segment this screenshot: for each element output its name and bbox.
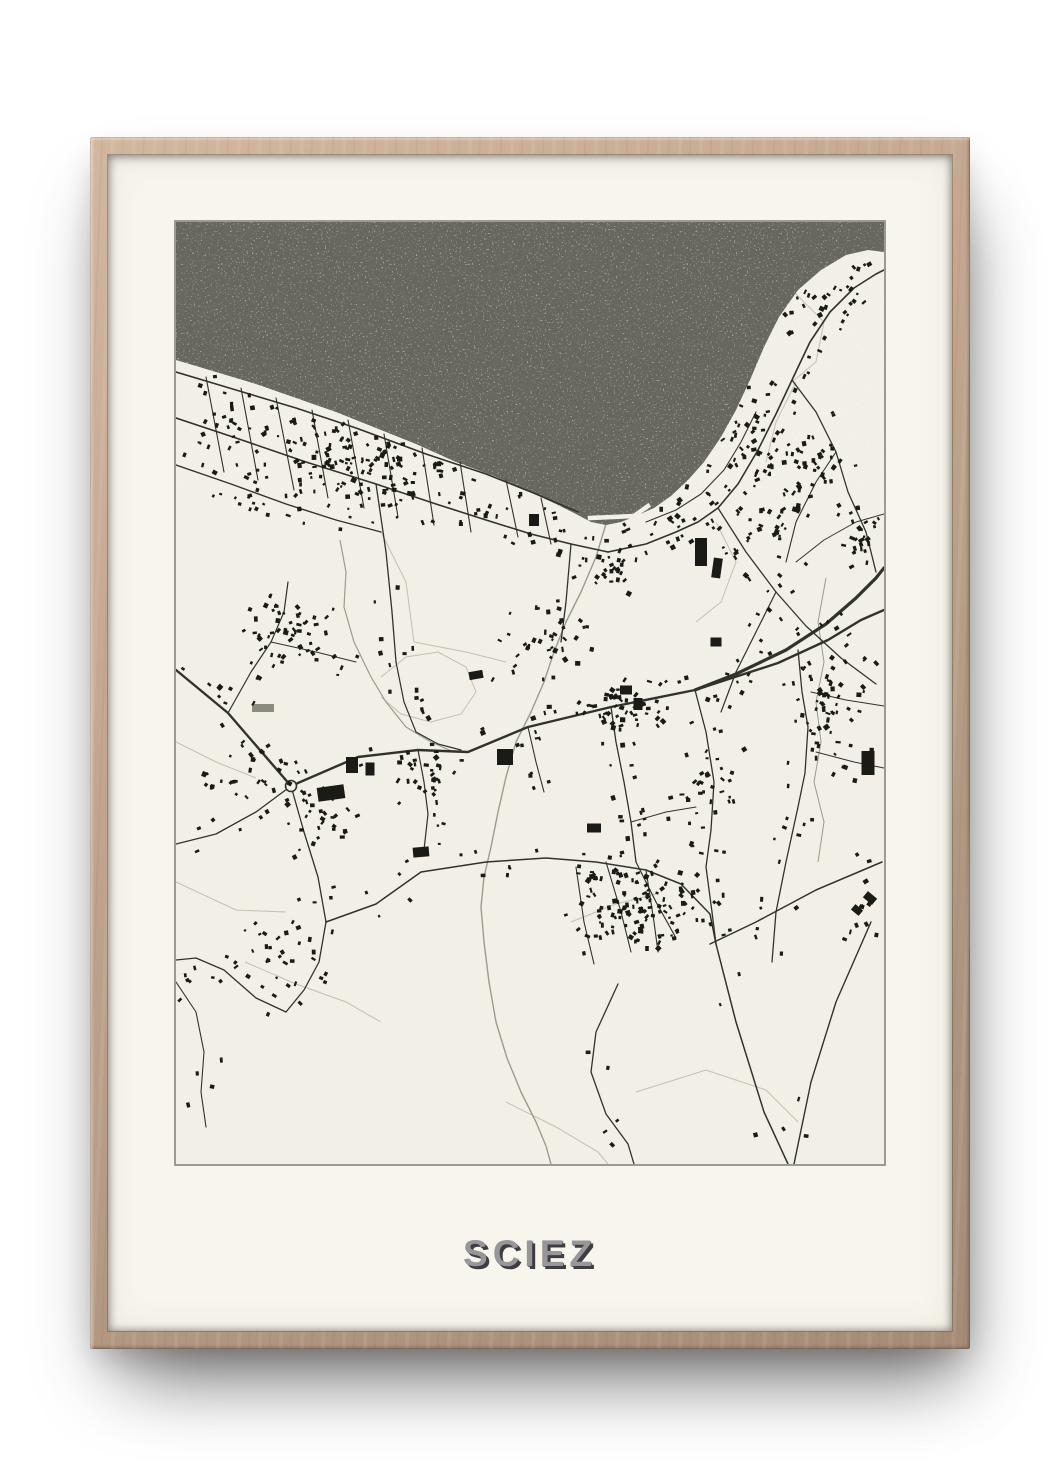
streams-layer — [340, 524, 826, 1164]
map-panel — [174, 220, 886, 1166]
title-row: SCIEZ — [108, 1233, 952, 1293]
poster-title: SCIEZ — [463, 1233, 597, 1275]
poster-frame: SCIEZ — [90, 137, 970, 1349]
lake-texture — [176, 222, 884, 525]
town-map-svg — [176, 222, 884, 1164]
wall: { "poster": { "title": "SCIEZ" }, "color… — [0, 0, 1058, 1480]
poster-mat: SCIEZ — [108, 155, 952, 1331]
marsh-patch — [252, 704, 274, 712]
